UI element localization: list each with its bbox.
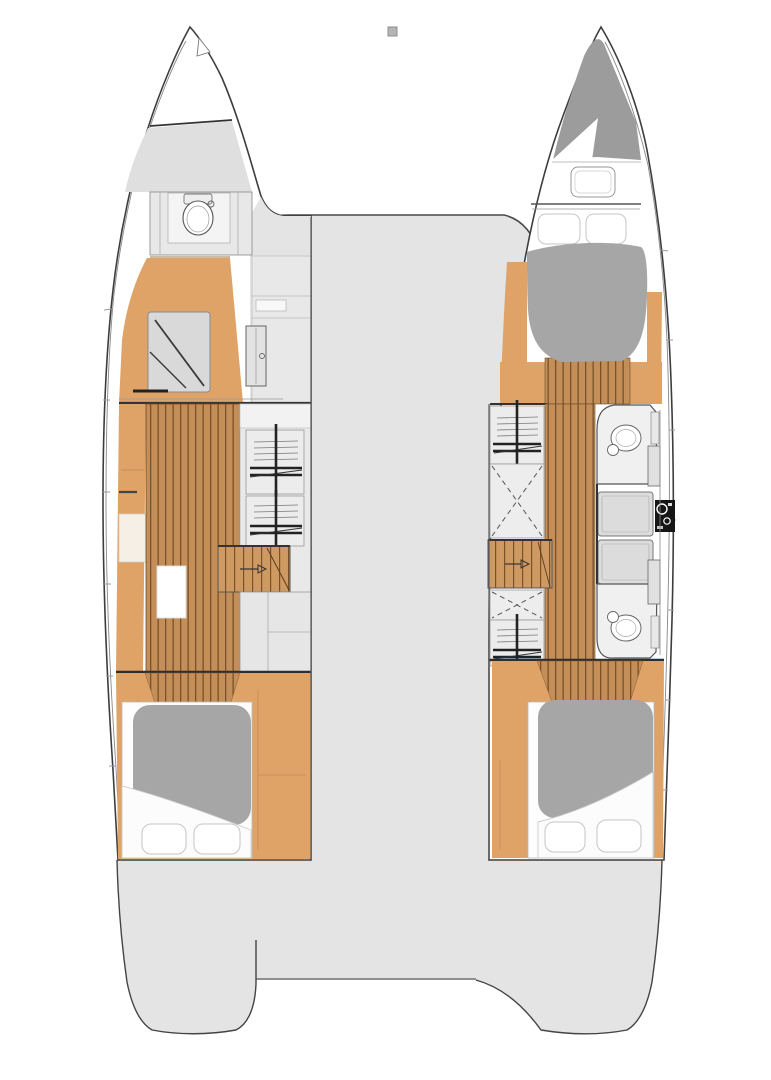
companionway-stairs-icon [488, 540, 552, 588]
port-aft-cabin [116, 673, 311, 859]
panel-recess [256, 300, 286, 311]
port-shower-room [119, 256, 311, 403]
shower-panel [598, 540, 653, 584]
door-frame [651, 616, 659, 648]
port-hull [103, 27, 311, 860]
starboard-lockers [488, 400, 552, 670]
deck-hatch-icon [571, 167, 615, 197]
companionway-stairs-icon [218, 546, 290, 592]
corridor-plank-floor [146, 404, 240, 672]
bridge-deck-aft-surface [252, 860, 492, 980]
port-toilet-room [150, 192, 252, 255]
bed-mattress [527, 243, 647, 362]
pillow [545, 822, 585, 852]
shower-door-panel [648, 560, 660, 604]
pillow [586, 214, 626, 244]
pillow [597, 820, 641, 852]
pillow [142, 824, 186, 854]
starboard-hull [488, 27, 676, 860]
catamaran-floor-plan [0, 0, 771, 1080]
wardrobe-icon [490, 464, 544, 538]
floor-light-block [119, 514, 146, 562]
aft-cabin-plank-floor [537, 661, 643, 702]
double-bed [528, 700, 654, 858]
shower-panel [598, 492, 653, 536]
port-foredeck [125, 121, 252, 192]
door-icon [246, 326, 266, 386]
shelf-unit-icon [490, 400, 544, 468]
port-corridor [116, 404, 240, 672]
door-frame [651, 412, 659, 444]
toilet-icon [183, 194, 214, 235]
sink-console-icon [655, 500, 675, 532]
port-stern-platform [117, 860, 256, 1034]
floor-plan-page: Catamaran interior layout plan, top view… [0, 0, 771, 1080]
starboard-aft-cabin [492, 661, 664, 858]
floor-hatch [157, 566, 186, 618]
cabin-foot-planks [545, 358, 630, 404]
pillow [538, 214, 580, 244]
shelf-unit-icon [246, 424, 304, 498]
mast-marker-icon [388, 27, 397, 36]
pillow [194, 824, 240, 854]
starboard-stern-platform [476, 860, 662, 1034]
starboard-corridor-planks [545, 404, 595, 662]
under-stairs-cabinet [240, 592, 311, 672]
shower-door-panel [648, 446, 660, 486]
shelf-unit-icon [246, 490, 304, 550]
double-bed [122, 702, 252, 858]
